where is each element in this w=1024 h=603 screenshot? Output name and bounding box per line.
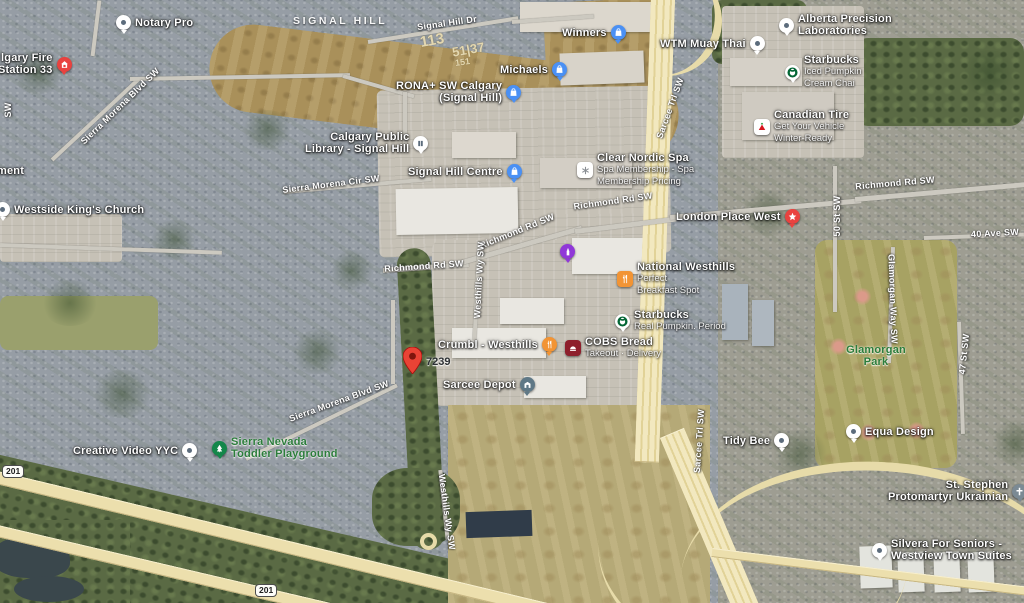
pin-dot	[755, 41, 760, 46]
trees	[240, 110, 294, 150]
poi-subtitle-line: Iced Pumpkin	[804, 66, 862, 78]
poi-label-line: Laboratories	[798, 25, 892, 37]
retail-building	[452, 132, 516, 158]
poi-label: Sarcee Depot	[443, 379, 516, 391]
poi-subtitle-line: Takeout · Delivery	[585, 348, 661, 360]
poi-label-line: St. Stephen	[946, 479, 1009, 491]
road-label: 50 St SW	[832, 196, 842, 237]
poi-label-line: lgary Fire	[1, 52, 53, 64]
fire-station-icon[interactable]	[57, 57, 72, 72]
pond	[14, 576, 84, 602]
generic-pin-icon[interactable]	[750, 36, 765, 51]
trees	[960, 50, 1018, 96]
poi-sarcee-depot[interactable]: Sarcee Depot	[443, 377, 535, 392]
trees	[150, 220, 198, 260]
poi-subtitle-line: Get Your Vehicle	[774, 121, 849, 133]
poi-fire-station-33[interactable]: lgary Fire Station 33	[0, 52, 72, 76]
poi-label-line: RONA+ SW Calgary	[396, 80, 502, 92]
poi-clear-nordic-spa[interactable]: Clear Nordic Spa Spa Membership - Spa Me…	[577, 152, 694, 188]
generic-pin-icon[interactable]	[779, 18, 794, 33]
poi-label-line: Station 33	[0, 64, 53, 76]
poi-label-line: Toddler Playground	[231, 448, 338, 460]
poi-label: COBS Bread	[585, 336, 661, 348]
sierra-morena-blvd-south	[391, 300, 395, 384]
poi-starbucks-westhills[interactable]: Starbucks Real Pumpkin. Period	[615, 309, 726, 333]
poi-partial-label[interactable]: ment	[0, 165, 24, 177]
poi-crumbl-westhills[interactable]: Crumbl - Westhills	[438, 337, 557, 352]
generic-pin-icon[interactable]	[116, 15, 131, 30]
poi-alberta-precision-labs[interactable]: Alberta Precision Laboratories	[779, 13, 892, 37]
restaurant-icon[interactable]	[617, 271, 633, 287]
poi-subtitle-line: Membership Pricing	[597, 176, 694, 188]
area-label-signal-hill: SIGNAL HILL	[293, 15, 387, 27]
poi-label-line: Sierra Nevada	[231, 436, 338, 448]
poi-creative-video-yyc[interactable]: Creative Video YYC	[73, 443, 197, 458]
pin-dot	[851, 429, 856, 434]
poi-toddler-playground[interactable]: Sierra Nevada Toddler Playground	[212, 436, 338, 460]
poi-london-place-west[interactable]: London Place West	[676, 209, 800, 224]
canadian-tire-icon[interactable]	[754, 119, 770, 135]
park-label-line: Glamorgan	[846, 344, 906, 356]
library-book-icon[interactable]	[413, 136, 428, 151]
poi-label: WTM Muay Thai	[660, 38, 746, 50]
baseball-diamond	[854, 288, 871, 305]
big-box-store	[396, 187, 519, 235]
poi-label: National Westhills	[637, 261, 735, 273]
destination-marker-pin[interactable]	[403, 347, 422, 374]
apartment-building	[752, 300, 774, 346]
pin-dot	[779, 438, 784, 443]
poi-westside-kings-church[interactable]: Westside King's Church	[0, 202, 144, 217]
poi-label: Crumbl - Westhills	[438, 339, 538, 351]
satellite-map-canvas[interactable]: 113 51|37 151 SIGNAL HILL Signal Hill Dr…	[0, 0, 1024, 603]
reservoir	[466, 510, 533, 538]
poi-silvera-for-seniors[interactable]: Silvera For Seniors - Westview Town Suit…	[872, 538, 1012, 562]
church-parking	[0, 214, 122, 262]
poi-label-line: Westview Town Suites	[891, 550, 1012, 562]
shopping-bag-icon[interactable]	[506, 85, 521, 100]
generic-pin-icon[interactable]	[0, 202, 10, 217]
poi-subtitle-line: Perfect	[637, 273, 735, 285]
trees	[40, 280, 100, 326]
poi-label: Starbucks	[804, 54, 862, 66]
poi-cobs-bread[interactable]: COBS Bread Takeout · Delivery	[565, 336, 661, 360]
poi-label: Notary Pro	[135, 17, 193, 29]
restaurant-icon[interactable]	[542, 337, 557, 352]
poi-glamorgan-park[interactable]: Glamorgan Park	[836, 344, 916, 368]
shopping-bag-icon[interactable]	[611, 25, 626, 40]
poi-label: London Place West	[676, 211, 781, 223]
poi-canadian-tire[interactable]: Canadian Tire Get Your Vehicle Winter-Re…	[754, 109, 849, 145]
poi-label-line: Alberta Precision	[798, 13, 892, 25]
shopping-bag-icon[interactable]	[507, 164, 522, 179]
poi-starbucks-north[interactable]: Starbucks Iced Pumpkin Cream Chai	[785, 54, 862, 90]
poi-subtitle-line: Breakfast Spot	[637, 285, 735, 297]
poi-label: ment	[0, 165, 24, 177]
purple-poi-icon[interactable]	[560, 244, 575, 259]
poi-winners[interactable]: Winners	[562, 25, 626, 40]
poi-national-westhills[interactable]: National Westhills Perfect Breakfast Spo…	[617, 261, 735, 297]
trees	[90, 370, 154, 418]
trees	[330, 250, 374, 290]
starbucks-icon[interactable]	[615, 314, 630, 329]
poi-notary-pro[interactable]: Notary Pro	[116, 15, 193, 30]
pin-dot	[877, 548, 882, 553]
trees	[290, 330, 344, 374]
poi-label-line: Library - Signal Hill	[305, 143, 409, 155]
poi-label: Signal Hill Centre	[408, 166, 503, 178]
shopping-bag-icon[interactable]	[552, 62, 567, 77]
depot-icon[interactable]	[520, 377, 535, 392]
generic-pin-icon[interactable]	[182, 443, 197, 458]
poi-label: Starbucks	[634, 309, 726, 321]
poi-label: Canadian Tire	[774, 109, 849, 121]
poi-subtitle-line: Winter-Ready	[774, 133, 849, 145]
spa-icon[interactable]	[577, 162, 593, 178]
generic-pin-icon[interactable]	[846, 424, 861, 439]
poi-label: Michaels	[500, 64, 548, 76]
poi-label: Tidy Bee	[723, 435, 770, 447]
poi-label-line: (Signal Hill)	[439, 92, 502, 104]
starbucks-icon[interactable]	[785, 65, 800, 80]
roundabout	[420, 533, 437, 550]
highway-shield-201: 201	[255, 584, 277, 597]
poi-signal-hill-centre[interactable]: Signal Hill Centre	[408, 164, 522, 179]
poi-label: Westside King's Church	[14, 204, 144, 216]
retail-building	[500, 298, 564, 324]
poi-subtitle-line: Spa Membership - Spa	[597, 164, 694, 176]
red-place-icon[interactable]	[785, 209, 800, 224]
park-label-line: Park	[864, 356, 889, 368]
pin-dot	[187, 448, 192, 453]
poi-label: Creative Video YYC	[73, 445, 178, 457]
poi-label-line: Calgary Public	[330, 131, 409, 143]
poi-wtm-muay-thai[interactable]: WTM Muay Thai	[660, 36, 765, 51]
poi-equa-design[interactable]: Equa Design	[846, 424, 934, 439]
highway-shield-201: 201	[2, 465, 24, 478]
poi-st-stephen-church[interactable]: St. Stephen Protomartyr Ukrainian	[888, 479, 1024, 503]
playground-tree-icon[interactable]	[212, 441, 227, 456]
poi-calgary-public-library[interactable]: Calgary Public Library - Signal Hill	[305, 131, 428, 155]
poi-subtitle-line: Real Pumpkin. Period	[634, 321, 726, 333]
pin-dot	[784, 23, 789, 28]
hillside-number: 151	[454, 56, 470, 68]
poi-label: Winners	[562, 27, 607, 39]
poi-label: Equa Design	[865, 426, 934, 438]
poi-rona[interactable]: RONA+ SW Calgary (Signal Hill)	[396, 80, 521, 104]
poi-purple-pin[interactable]	[560, 244, 575, 259]
generic-pin-icon[interactable]	[872, 543, 887, 558]
poi-label-line: Protomartyr Ukrainian	[888, 491, 1008, 503]
church-cross-icon[interactable]	[1012, 484, 1024, 499]
50-st-sw	[833, 166, 837, 312]
poi-label: Clear Nordic Spa	[597, 152, 694, 164]
pin-dot	[0, 207, 5, 212]
cobs-bread-icon[interactable]	[565, 340, 581, 356]
pin-dot	[121, 20, 126, 25]
poi-label-line: Silvera For Seniors -	[891, 538, 1012, 550]
address-label: 7239	[426, 356, 450, 368]
poi-michaels[interactable]: Michaels	[500, 62, 567, 77]
generic-pin-icon[interactable]	[774, 433, 789, 448]
road-label-partial: SW	[3, 102, 13, 117]
poi-tidy-bee[interactable]: Tidy Bee	[723, 433, 789, 448]
poi-subtitle-line: Cream Chai	[804, 78, 862, 90]
